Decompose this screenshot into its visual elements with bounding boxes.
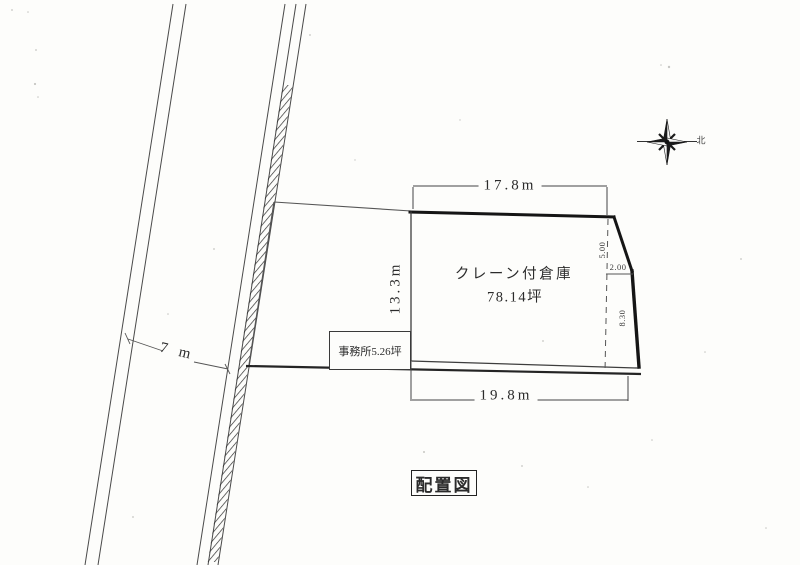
office-label: 事務所5.26坪 [338,343,401,359]
dimension-bottom-text: 19.8m [475,388,538,404]
parcel-boundary [246,202,641,374]
warehouse-area-label: 78.14坪 [487,286,543,307]
dimension-label-bottom: 19.8m [475,388,538,405]
drawing-title: 配置図 [416,471,473,496]
dimension-label-chamfer-vertical: 5.00 [597,242,607,259]
road-lines [85,4,306,565]
dimension-label-left: 13.3m [388,262,405,315]
dimension-label-top: 17.8m [479,178,542,195]
north-label: 北 [696,134,705,147]
dimension-label-chamfer-horizontal: 2.00 [610,262,627,272]
dimension-label-right-edge: 8.30 [617,310,627,327]
dimension-top-text: 17.8m [479,178,542,194]
compass-rose-icon [637,119,697,165]
site-plan-page: 17.8m 13.3m 19.8m 7 m 5.00 2.00 8.30 クレー… [0,0,800,565]
warehouse-name-label: クレーン付倉庫 [455,263,573,284]
office-box: 事務所5.26坪 [329,331,411,370]
road-edge-hatching [208,85,293,562]
drawing-title-box: 配置図 [411,470,477,496]
